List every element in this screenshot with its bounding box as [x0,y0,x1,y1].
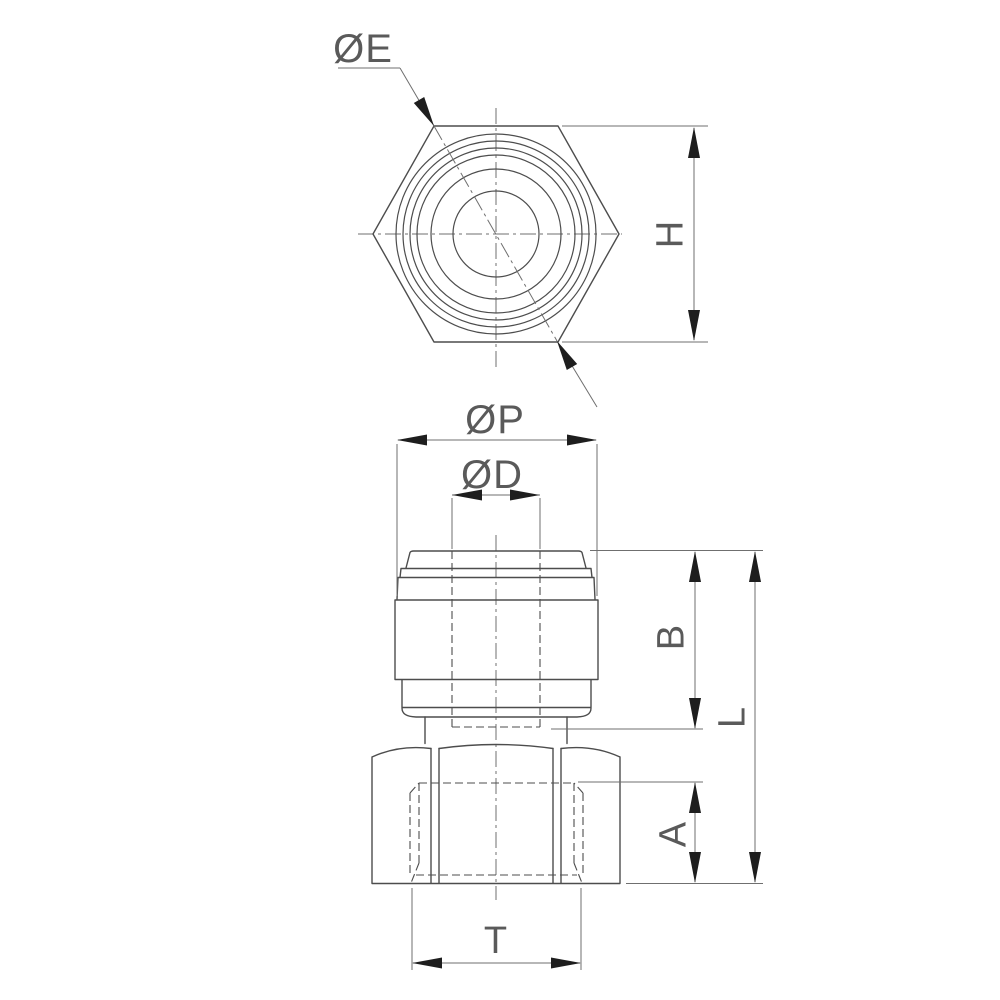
dim-p-arrow-right [567,435,597,446]
technical-drawing: ØE H [0,0,1000,1000]
dim-p-label: ØP [465,398,525,442]
dim-p-arrow-left [397,435,427,446]
dim-l-arrow-bottom [749,852,761,883]
dim-h-arrow-bottom [688,310,700,341]
dimension-b: B [650,551,701,729]
dim-e-arrow-lower [557,341,577,370]
dim-a-arrow-bottom [689,852,701,883]
dim-a-label: A [652,821,694,847]
dim-t-arrow-right [551,958,581,969]
dim-h-label: H [649,220,691,248]
dim-e-leader [338,68,597,407]
dimension-l: L [711,551,761,883]
dim-d-label: ØD [461,453,523,497]
dimension-d: ØD [452,453,540,549]
front-view: ØP ØD B L [372,398,763,970]
dim-l-arrow-top [749,551,761,582]
dimension-a: A [652,782,701,883]
top-view: ØE H [333,27,708,407]
dim-e-label: ØE [333,27,393,71]
dimension-p: ØP [397,398,597,596]
dim-e-arrow-upper [414,97,434,126]
dim-b-label: B [650,624,692,650]
dim-t-label: T [484,920,508,962]
dim-a-arrow-top [689,782,701,813]
dim-h-arrow-top [688,127,700,158]
dim-b-arrow-bottom [689,698,701,729]
dimension-e: ØE [333,27,597,407]
dim-b-arrow-top [689,551,701,582]
dim-l-label: L [711,706,753,728]
dim-t-arrow-left [412,958,442,969]
dimension-t: T [412,888,581,970]
